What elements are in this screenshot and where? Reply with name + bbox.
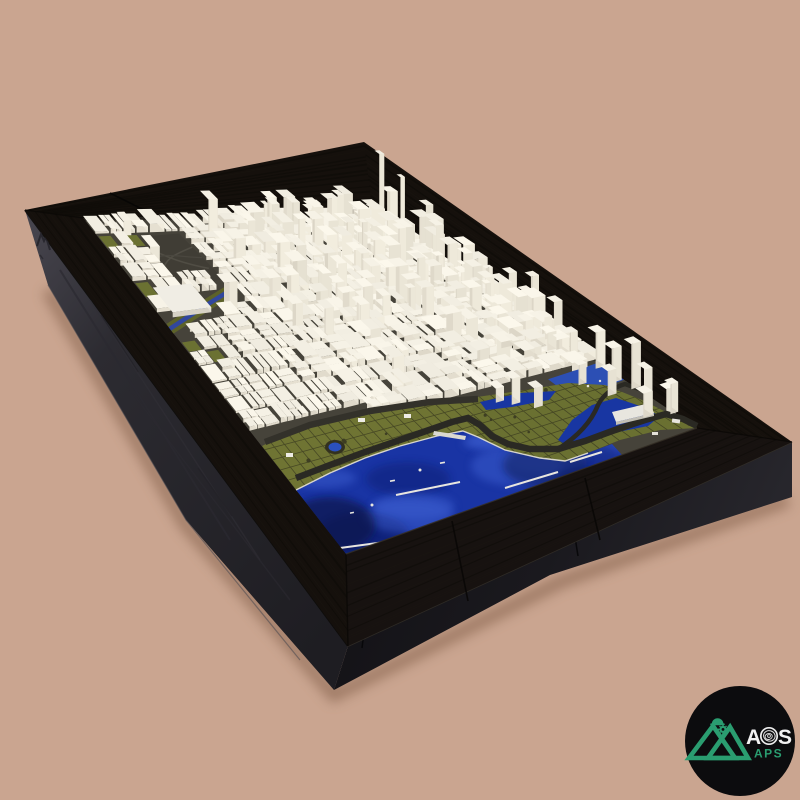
svg-text:APS: APS (754, 747, 783, 761)
